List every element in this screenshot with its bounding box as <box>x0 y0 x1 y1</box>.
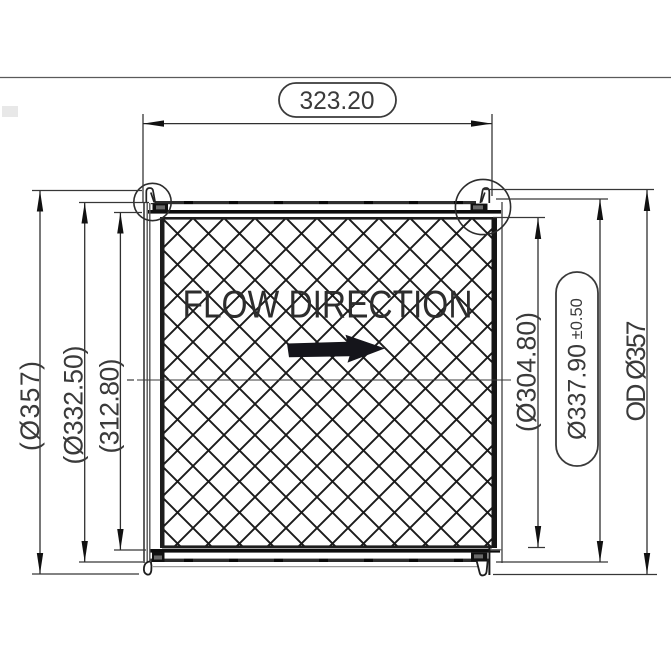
svg-text:FLOW DIRECTION: FLOW DIRECTION <box>183 284 473 327</box>
svg-text:(312.80): (312.80) <box>95 359 125 454</box>
svg-text:(Ø357): (Ø357) <box>15 361 45 451</box>
svg-text:323.20: 323.20 <box>300 87 375 115</box>
svg-text:(Ø332.50): (Ø332.50) <box>59 346 89 465</box>
svg-text:(Ø304.80): (Ø304.80) <box>512 312 542 432</box>
svg-text:OD Ø357: OD Ø357 <box>621 321 651 422</box>
